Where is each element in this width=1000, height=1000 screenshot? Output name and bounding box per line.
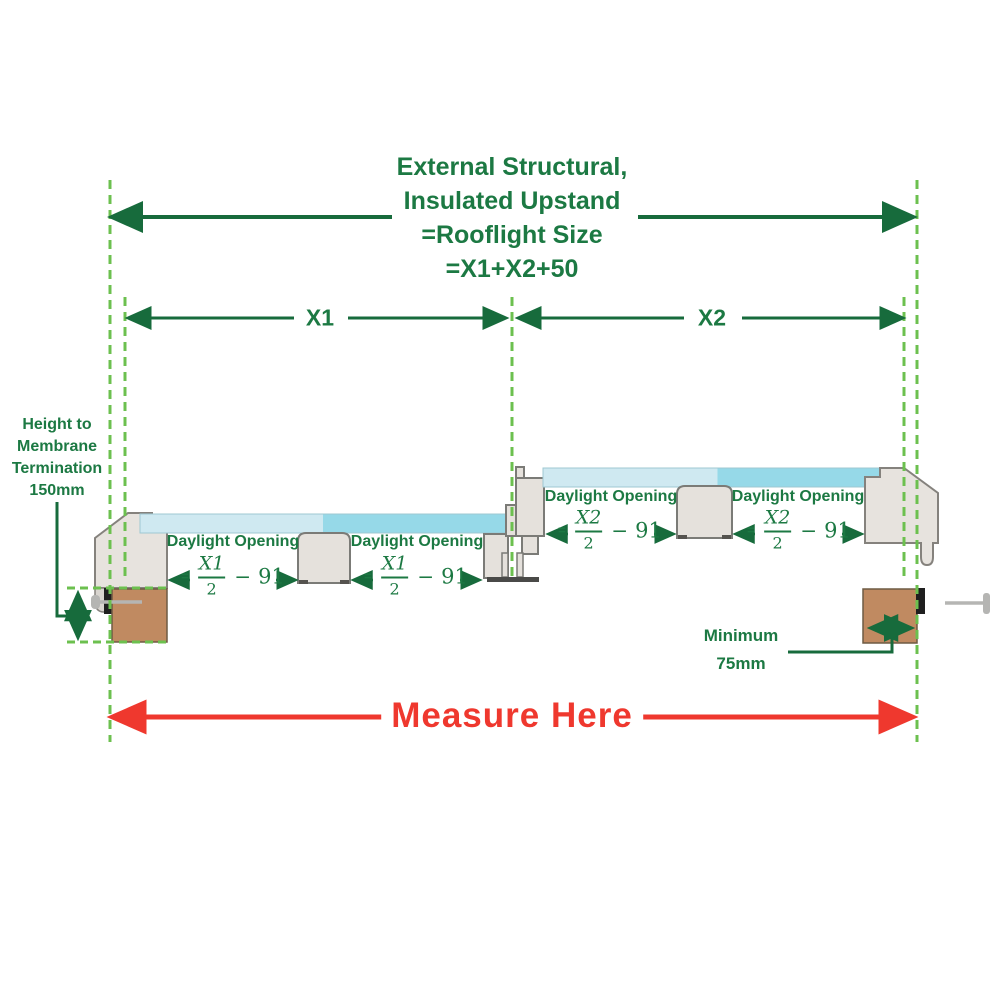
title-line-2: Insulated Upstand: [397, 184, 628, 218]
height-150mm-dimension: [57, 502, 78, 636]
minimum-75mm-dimension: [788, 628, 910, 652]
x1-label: X1: [300, 305, 340, 332]
height-150mm-leader: [57, 502, 74, 616]
formula-x2-right: = X2 2 − 91: [747, 509, 851, 552]
fraction-x2: X2 2: [573, 509, 605, 552]
left-mid-bottom-profile: [298, 533, 350, 584]
joint-base-plate: [487, 577, 539, 582]
joint-lower-extension: [522, 536, 538, 554]
fraction-x1: X1 2: [196, 555, 228, 598]
joint-upper-body: [516, 478, 544, 536]
fraction-x1: X1 2: [379, 555, 411, 598]
title-line-3: =Rooflight Size: [397, 218, 628, 252]
rooflight-measurement-diagram: External Structural, Insulated Upstand =…: [0, 0, 1000, 1000]
left-timber-upstand: [112, 589, 167, 642]
left-fixing-screw-head: [91, 595, 100, 609]
right-frame-section: [863, 468, 990, 643]
right-fixing-screw-head: [983, 593, 990, 614]
daylight-opening-label-4: Daylight Opening: [732, 488, 864, 506]
diagram-title: External Structural, Insulated Upstand =…: [397, 150, 628, 286]
daylight-opening-label-1: Daylight Opening: [167, 533, 299, 551]
measure-here-label: Measure Here: [381, 696, 643, 736]
title-line-4: =X1+X2+50: [397, 252, 628, 286]
formula-x1-right: = X1 2 − 91: [364, 555, 468, 598]
right-timber-upstand: [863, 589, 917, 643]
formula-x1-left: = X1 2 − 91: [181, 555, 285, 598]
joint-channel-wall-right: [517, 553, 523, 577]
height-to-membrane-note: Height to Membrane Termination 150mm: [12, 414, 102, 502]
x2-label: X2: [692, 305, 732, 332]
joint-channel-wall-left: [502, 553, 508, 577]
formula-x2-left: = X2 2 − 91: [558, 509, 662, 552]
title-line-1: External Structural,: [397, 150, 628, 184]
right-frame-profile: [865, 468, 938, 565]
right-mid-bottom-profile: [677, 486, 732, 539]
minimum-75mm-note: Minimum 75mm: [704, 622, 779, 678]
daylight-opening-label-2: Daylight Opening: [351, 533, 483, 551]
left-glass-pane: [140, 514, 506, 533]
right-glass-pane: [543, 468, 892, 487]
fraction-x2: X2 2: [762, 509, 794, 552]
daylight-opening-label-3: Daylight Opening: [545, 488, 677, 506]
